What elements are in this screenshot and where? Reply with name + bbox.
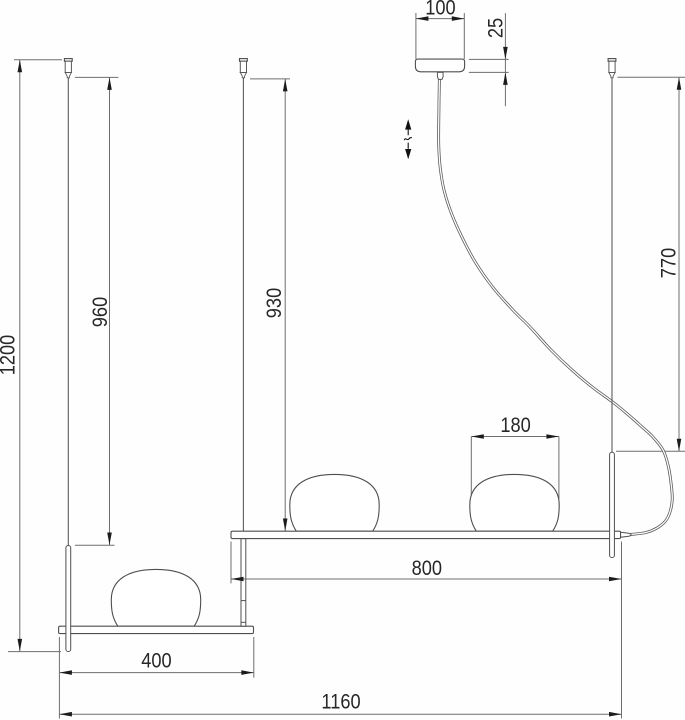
svg-text:1160: 1160 <box>321 690 360 714</box>
svg-text:800: 800 <box>412 557 442 581</box>
svg-text:770: 770 <box>657 248 681 278</box>
svg-text:180: 180 <box>500 414 530 438</box>
svg-text:400: 400 <box>141 649 171 673</box>
svg-text:1200: 1200 <box>0 335 20 376</box>
svg-text:25: 25 <box>484 18 508 38</box>
svg-text:100: 100 <box>425 0 455 20</box>
svg-text:960: 960 <box>89 297 113 327</box>
svg-text:930: 930 <box>263 288 287 318</box>
